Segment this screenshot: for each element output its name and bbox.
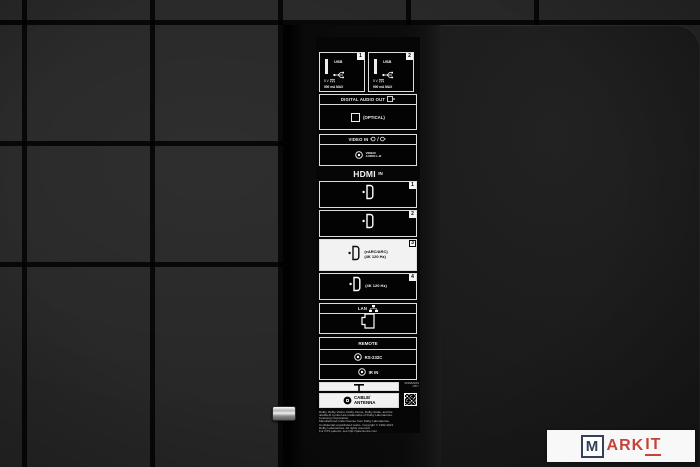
watermark-m-logo: M (581, 435, 604, 458)
usb-label: USB (334, 59, 342, 64)
watermark-text: ARK (607, 437, 645, 455)
digital-audio-out-header: DIGITAL AUDIO OUT (341, 97, 385, 102)
ir-in-label: IR IN (369, 370, 379, 375)
composite-in-icon (370, 136, 387, 143)
port-number-badge: 3 (409, 240, 416, 247)
hdmi-section-header: HDMI IN (316, 168, 420, 179)
remote-section: REMOTE RS-232C IR IN (319, 337, 417, 380)
optical-port-label: (OPTICAL) (363, 115, 385, 120)
minijack-icon (358, 368, 366, 377)
cable-label-line2: ANTENNA (354, 401, 375, 406)
recycling-mark: >PP< (398, 385, 419, 388)
dc-symbol-icon (379, 79, 384, 84)
hdmi-port-4: 4 (4K 120 Hz) (319, 273, 417, 300)
port-number-badge: 1 (357, 53, 364, 60)
lan-section: LAN (319, 303, 417, 334)
lan-network-icon (369, 305, 378, 313)
usb-voltage: 5 V (373, 79, 378, 83)
hdmi-port-1: 1 (319, 181, 417, 208)
video-in-section: VIDEO IN VIDEO/ AUDIO-L-R (319, 134, 417, 166)
hdmi-in-label: IN (378, 171, 383, 176)
antenna-icon-bar (319, 382, 399, 391)
rs232c-label: RS-232C (365, 355, 383, 360)
legal-text-block: Dolby, Dolby Vision, Dolby Atmos, Dolby … (319, 411, 419, 433)
lan-header: LAN (358, 306, 367, 311)
cable-antenna-section: CABLE/ ANTENNA (319, 393, 399, 408)
minijack-icon (355, 146, 363, 164)
usb-slot (325, 59, 328, 74)
hdmi-port-2: 2 (319, 210, 417, 237)
hdmi-connector-icon (348, 244, 361, 267)
video-in-header: VIDEO IN (349, 137, 369, 142)
qr-code (404, 393, 417, 406)
cable-clip (272, 406, 296, 421)
legal-line: For DTS patents, see http://patents.dts.… (319, 430, 419, 433)
video-audio-label-line2: AUDIO-L-R (366, 155, 382, 159)
port-number-badge: 2 (406, 53, 413, 60)
rj45-port-icon (361, 313, 375, 334)
usb-port-2: 2 USB 5 V 900 mA MAX (368, 52, 414, 92)
remote-header: REMOTE (320, 338, 416, 349)
digital-audio-out-section: DIGITAL AUDIO OUT (OPTICAL) (319, 94, 417, 130)
usb-port-1: 1 USB 5 V 500 mA MAX (319, 52, 365, 92)
usb-voltage: 5 V (324, 79, 329, 83)
minijack-icon (354, 353, 362, 362)
tv-back-photo: 1 USB 5 V 500 mA MAX 2 USB 5 V 9 (0, 0, 700, 467)
hdmi3-label-line2: (4K 120 Hz) (364, 255, 387, 260)
hdmi-connector-icon (362, 183, 375, 206)
usb-current-rating: 900 mA MAX (373, 85, 392, 89)
hdmi4-label: (4K 120 Hz) (365, 284, 387, 289)
hdmi-connector-icon (349, 275, 362, 298)
optical-out-icon (387, 96, 395, 103)
port-number-badge: 2 (409, 211, 416, 218)
usb-current-rating: 500 mA MAX (324, 85, 343, 89)
watermark-text-underlined: IT (645, 436, 661, 456)
port-number-badge: 4 (409, 274, 416, 281)
usb-label: USB (383, 59, 391, 64)
terminal-label-panel: 1 USB 5 V 500 mA MAX 2 USB 5 V 9 (316, 37, 420, 433)
dc-symbol-icon (330, 79, 335, 84)
optical-port (351, 113, 360, 122)
hdmi-port-3-earc: 3 (eARC/ARC) (4K 120 Hz) (319, 239, 417, 271)
port-number-badge: 1 (409, 182, 416, 189)
markit-watermark: M ARK IT (547, 430, 695, 462)
coax-connector-icon (343, 392, 352, 410)
usb-slot (374, 59, 377, 74)
hdmi-logo: HDMI (353, 169, 376, 178)
hdmi-connector-icon (362, 212, 375, 235)
